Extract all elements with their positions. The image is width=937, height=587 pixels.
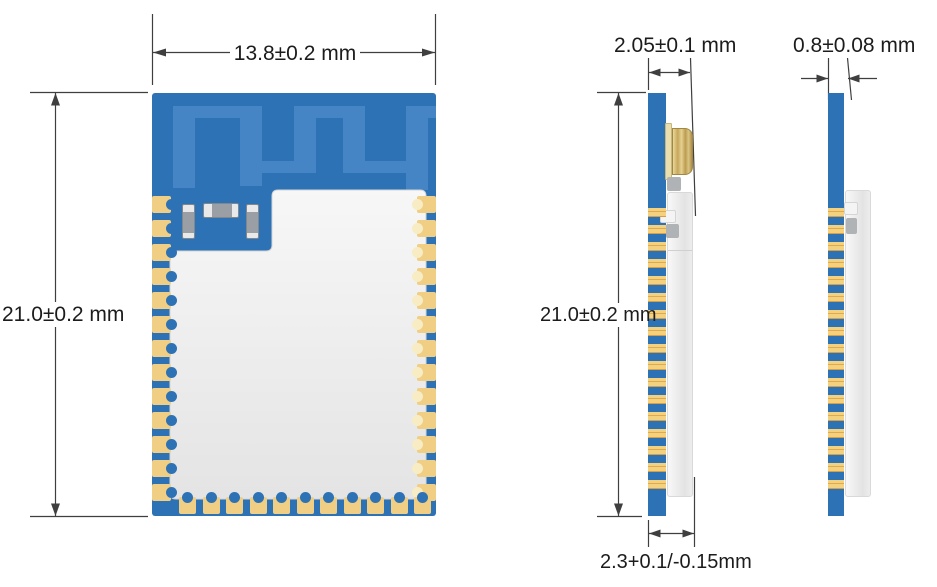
castellated-pad — [203, 497, 220, 514]
castellated-pad — [297, 497, 314, 514]
castellated-pad — [417, 412, 436, 429]
side-thickness-label: 2.05±0.1 mm — [612, 33, 732, 58]
ufl-connector-flange — [665, 123, 672, 180]
castellated-pad — [417, 340, 436, 357]
castellated-pad — [417, 364, 436, 381]
rf-shield-edge — [845, 190, 871, 497]
castellated-pad — [273, 497, 290, 514]
castellated-pad — [417, 220, 436, 237]
shield-seam — [668, 250, 692, 251]
castellated-pad — [152, 316, 171, 333]
castellated-pad — [391, 497, 408, 514]
castellated-pad — [226, 497, 243, 514]
side-height-label: 21.0±0.2 mm — [538, 303, 646, 327]
castellated-pad — [152, 340, 171, 357]
ufl-connector-icon — [672, 128, 693, 175]
smd-component-vertical-1 — [182, 204, 195, 239]
shield-clip-edge — [844, 202, 858, 215]
castellated-pad — [417, 244, 436, 261]
castellated-pad — [417, 388, 436, 405]
side-pad-label: 2.3+0.1/-0.15mm — [598, 550, 750, 574]
castellated-pad — [344, 497, 361, 514]
castellated-pad — [320, 497, 337, 514]
castellated-pad — [152, 412, 171, 429]
castellated-pad — [417, 268, 436, 285]
castellated-pad — [367, 497, 384, 514]
castellated-pad — [417, 292, 436, 309]
edge-thickness-label: 0.8±0.08 mm — [791, 33, 915, 58]
castellated-pad — [152, 244, 171, 261]
castellated-pad — [417, 196, 436, 213]
shield-notch-side — [666, 224, 679, 238]
smd-component-horizontal — [203, 203, 239, 218]
castellated-pad — [152, 388, 171, 405]
castellated-pad — [414, 497, 431, 514]
rf-shield-front — [152, 93, 436, 516]
castellated-pad — [417, 436, 436, 453]
castellated-pad — [152, 364, 171, 381]
castellated-pad — [417, 460, 436, 477]
castellated-pad — [417, 316, 436, 333]
castellated-pad — [152, 436, 171, 453]
shield-notch-edge — [846, 218, 857, 234]
castellated-pad — [152, 220, 171, 237]
castellated-pads-left — [152, 196, 171, 501]
smd-component-vertical-2 — [246, 204, 259, 239]
castellated-pad — [152, 460, 171, 477]
front-height-label: 21.0±0.2 mm — [0, 302, 124, 327]
edge-pads-side — [648, 208, 666, 493]
castellated-pads-right — [417, 196, 436, 501]
module-dimension-diagram: 13.8±0.2 mm 21.0±0.2 mm 2.05±0.1 mm 21.0… — [0, 0, 937, 587]
edge-pads-edge — [828, 208, 844, 493]
dimension-lines — [0, 0, 937, 587]
castellated-pads-bottom — [179, 497, 431, 514]
front-width-label: 13.8±0.2 mm — [230, 41, 360, 66]
component-under-connector — [667, 177, 681, 191]
castellated-pad — [179, 497, 196, 514]
castellated-pad — [152, 268, 171, 285]
castellated-pad — [250, 497, 267, 514]
castellated-pad — [152, 196, 171, 213]
castellated-pad — [152, 484, 171, 501]
castellated-pad — [152, 292, 171, 309]
